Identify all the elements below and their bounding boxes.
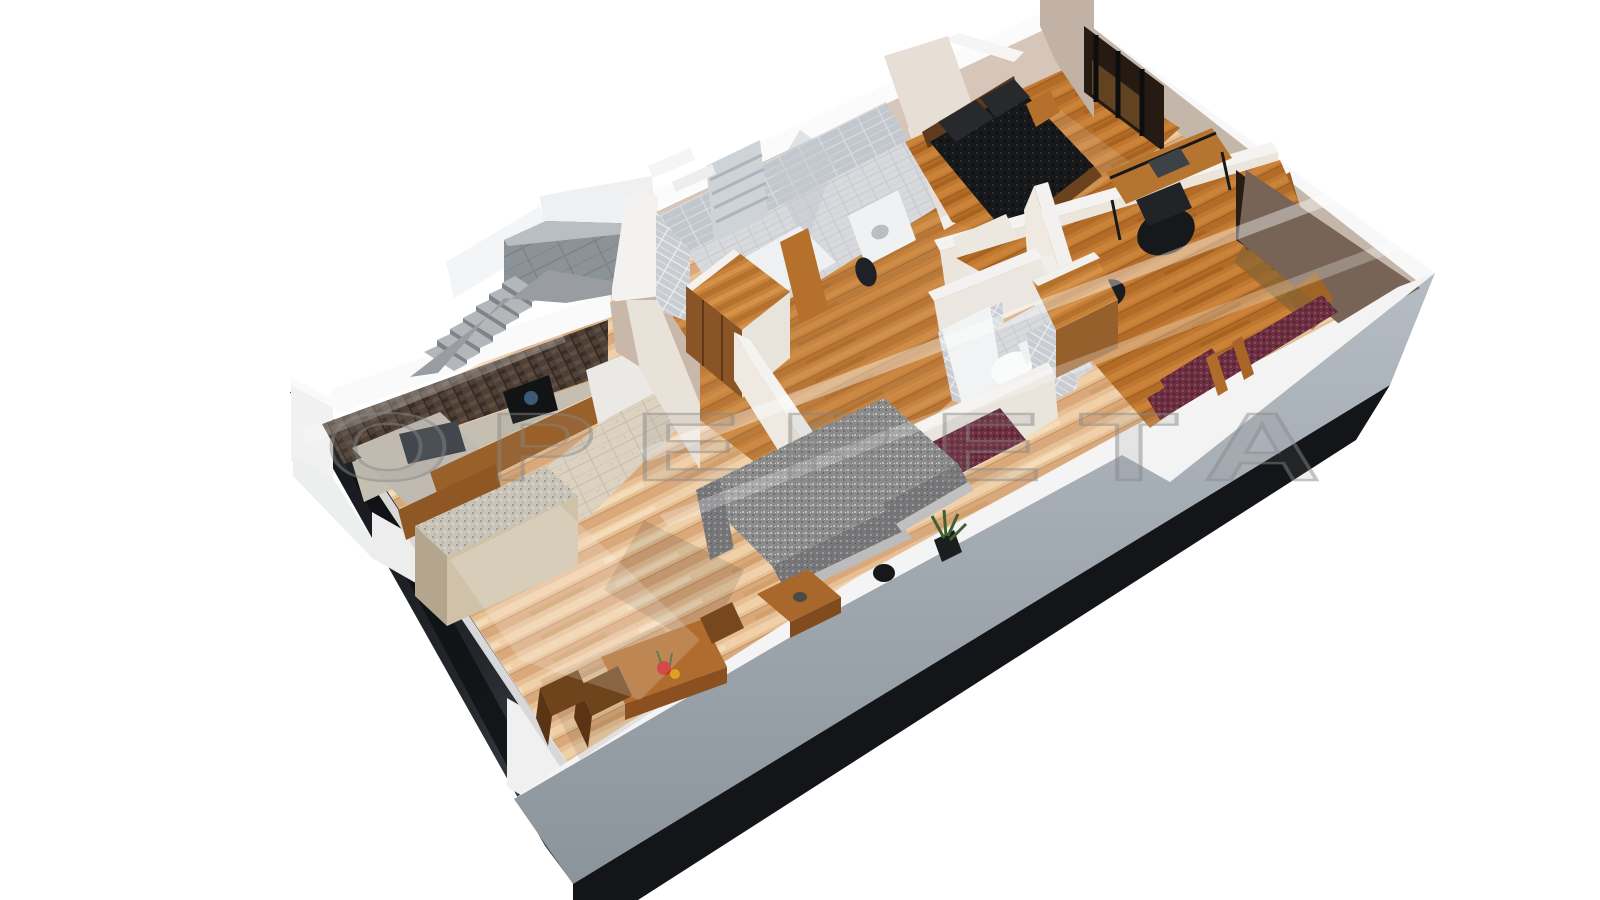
svg-text:OPERETA: OPERETA [325,394,1358,501]
